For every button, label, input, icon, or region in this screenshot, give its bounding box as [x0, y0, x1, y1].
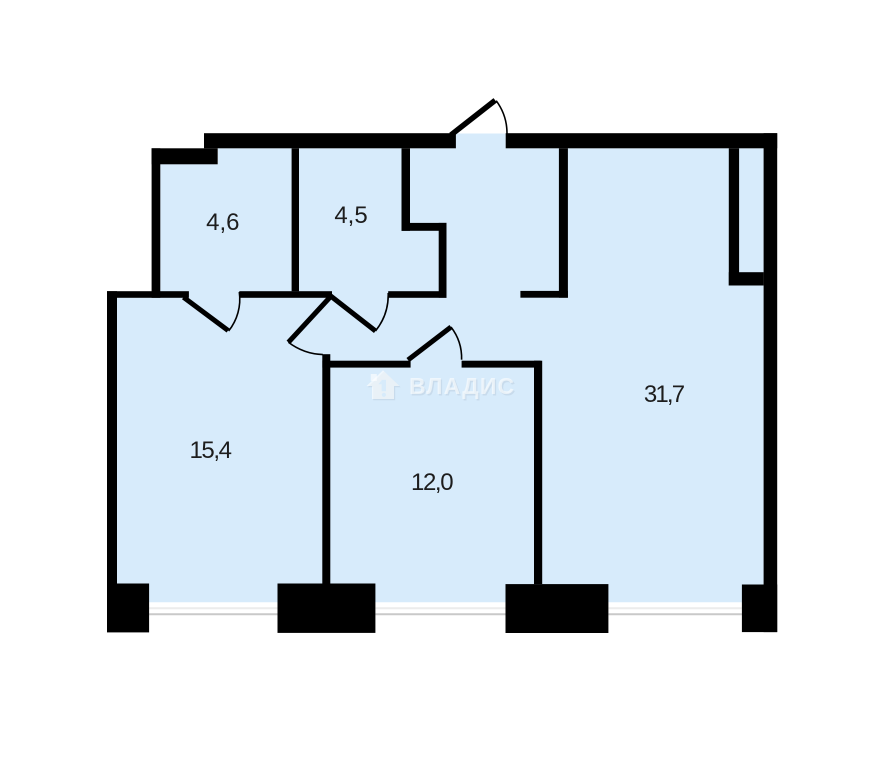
svg-text:ВЛАДИС: ВЛАДИС: [409, 373, 515, 399]
svg-text:4,6: 4,6: [206, 209, 239, 236]
svg-text:12,0: 12,0: [411, 469, 453, 496]
svg-text:31,7: 31,7: [644, 381, 685, 408]
svg-text:15,4: 15,4: [189, 437, 231, 464]
svg-text:4,5: 4,5: [334, 202, 367, 229]
